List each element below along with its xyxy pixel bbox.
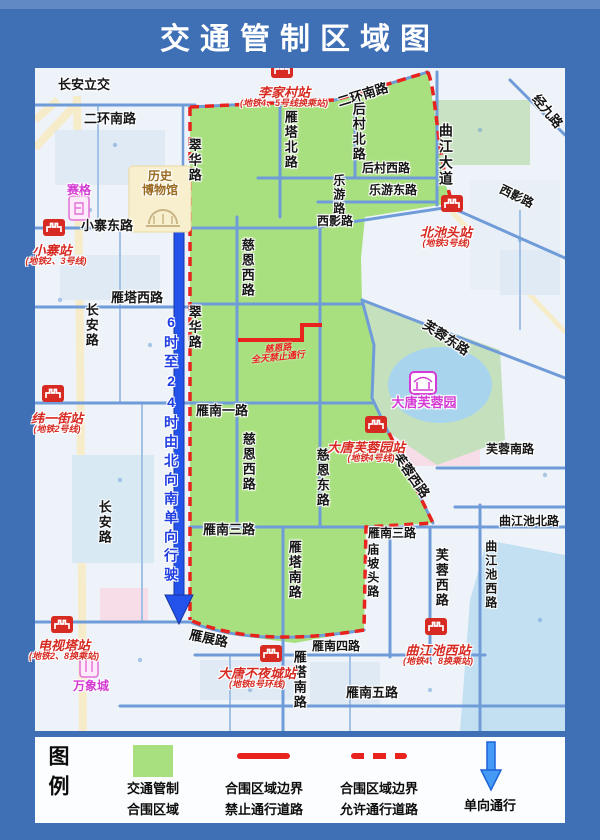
road-label-changanlijiao: 长安立交 (58, 78, 110, 92)
road-label-yannanwulu: 雁南五路 (346, 686, 398, 700)
road-label-furongxilu-south: 芙蓉西路 (434, 548, 448, 608)
road-label-xiaozhaidonglu: 小寨东路 (81, 219, 133, 233)
road-label-yantaxilu: 雁塔西路 (111, 291, 163, 305)
legend-oneway-arrow-icon (479, 740, 503, 792)
legend-open-line2: 允许通行道路 (340, 799, 418, 818)
road-label-cienxilu-south: 慈恩西路 (241, 432, 255, 492)
legend-heading: 图例 (42, 745, 72, 805)
road-label-xiyinglu-west: 西影路 (317, 215, 353, 228)
road-label-changanlu-north: 长安路 (84, 303, 98, 348)
legend-open-line1: 合围区域边界 (340, 778, 418, 797)
station-line-dianshita: (地铁2、8换乘站) (29, 649, 99, 662)
road-label-yannansilu: 雁南四路 (312, 640, 360, 653)
legend-dashed-line-swatch (351, 753, 407, 759)
road-label-yantabeilu: 雁塔北路 (283, 110, 297, 170)
legend-closed-line1: 合围区域边界 (225, 778, 303, 797)
station-line-beichitou: (地铁3号线) (423, 236, 470, 249)
legend-zone-line2: 合围区域 (127, 799, 179, 818)
road-label-leyoudonglu: 乐游东路 (369, 184, 417, 197)
legend-solid-line-swatch (237, 753, 290, 759)
station-line-xiaozhai: (地铁2、3号线) (25, 254, 86, 267)
station-line-datangbuyecheng: (地铁8号环线) (229, 677, 285, 690)
road-label-ciendonglu: 慈恩东路 (315, 448, 329, 508)
top-strip (0, 0, 600, 9)
road-label-yannansanlu-east: 雁南三路 (368, 527, 416, 540)
legend-oneway-label: 单向通行 (464, 795, 516, 814)
station-line-weiyijie: (地铁2号线) (34, 422, 81, 435)
road-label-erhuannanlu-west: 二环南路 (84, 112, 136, 126)
road-label-yannanyilu: 雁南一路 (196, 404, 248, 418)
road-label-houcunxilu: 后村西路 (362, 162, 410, 175)
station-line-datangfurongyuan: (地铁4号线) (348, 451, 395, 464)
poi-label-wanxiangcheng: 万象城 (73, 680, 109, 693)
road-label-yantananlu-north: 雁塔南路 (287, 540, 301, 600)
legend: 图例 交通管制 合围区域 合围区域边界 禁止通行道路 合围区域边界 允许通行道路… (35, 737, 565, 823)
legend-zone-line1: 交通管制 (127, 778, 179, 797)
road-label-yannansanlu-west: 雁南三路 (203, 523, 255, 537)
poi-label-saige: 赛格 (67, 184, 91, 197)
road-label-cuihualu-north: 翠华路 (187, 138, 201, 183)
oneway-note: 6时至24时由北向南单向行驶 (161, 314, 181, 586)
road-label-miaopotoulu: 庙坡头路 (366, 543, 379, 599)
map-panel (35, 68, 565, 731)
road-label-leyoulu: 乐游路 (332, 174, 345, 216)
road-label-qujiangdadao: 曲江大道 (438, 123, 453, 187)
road-label-qujiangchibeilu: 曲江池北路 (499, 515, 559, 528)
poi-label-datangfurongyuan: 大唐芙蓉园 (391, 396, 456, 410)
poi-label-museum-line1: 历史 (148, 170, 172, 183)
station-line-lijiacun: (地铁4、5号线换乘站) (240, 96, 328, 109)
poi-label-museum-line2: 博物馆 (142, 184, 178, 197)
page-title: 交通管制区域图 (0, 14, 600, 58)
road-label-changanlu-south: 长安路 (97, 500, 111, 545)
road-label-cienxilu-north: 慈恩西路 (240, 238, 254, 298)
legend-zone-swatch (133, 745, 173, 777)
legend-closed-line2: 禁止通行道路 (225, 799, 303, 818)
road-label-houcunbeilu: 后村北路 (351, 102, 365, 162)
road-label-qujiangchixilu: 曲江池西路 (484, 540, 497, 610)
station-line-qujiangchixi: (地铁4、8换乘站) (403, 654, 473, 667)
road-label-furongnanlu: 芙蓉南路 (486, 443, 534, 456)
traffic-control-map-page: 交通管制区域图 (0, 0, 600, 840)
road-label-cuihualu-south: 翠华路 (187, 305, 201, 350)
